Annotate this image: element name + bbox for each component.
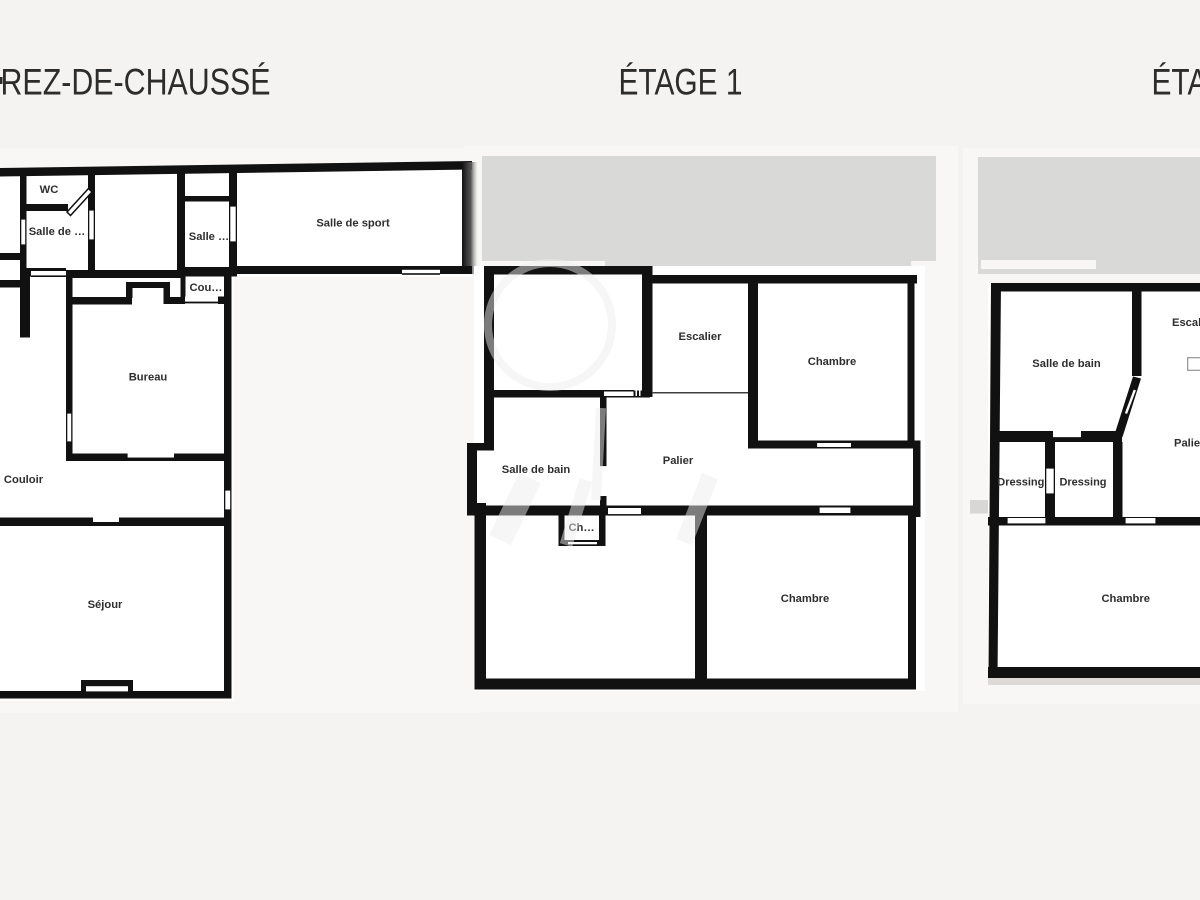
svg-text:WC: WC — [40, 184, 59, 196]
svg-text:Salle de sport: Salle de sport — [316, 218, 390, 230]
svg-text:Dressing: Dressing — [1059, 477, 1106, 489]
svg-text:Chambre: Chambre — [781, 593, 830, 605]
svg-text:Palier: Palier — [1174, 438, 1200, 450]
svg-text:Couloir: Couloir — [4, 474, 44, 486]
svg-text:Bureau: Bureau — [129, 372, 168, 384]
svg-text:Salle de bain: Salle de bain — [1032, 358, 1101, 370]
svg-text:Dressing: Dressing — [997, 477, 1044, 489]
svg-text:ÉTAGE 1: ÉTAGE 1 — [619, 62, 743, 103]
svg-text:Escalier: Escalier — [679, 331, 723, 343]
svg-text:Salle …: Salle … — [189, 231, 229, 243]
svg-text:REZ-DE-CHAUSSÉ: REZ-DE-CHAUSSÉ — [1, 62, 271, 103]
svg-text:Salle de bain: Salle de bain — [502, 464, 571, 476]
svg-text:Palier: Palier — [663, 455, 694, 467]
svg-text:Cou…: Cou… — [190, 282, 223, 294]
svg-text:Chambre: Chambre — [1101, 593, 1150, 605]
svg-text:ÉTAGE 2: ÉTAGE 2 — [1152, 62, 1200, 103]
svg-text:Séjour: Séjour — [88, 599, 123, 611]
svg-text:Escalier: Escalier — [1172, 317, 1200, 329]
svg-text:Salle de …: Salle de … — [29, 226, 86, 238]
svg-text:Chambre: Chambre — [808, 356, 857, 368]
